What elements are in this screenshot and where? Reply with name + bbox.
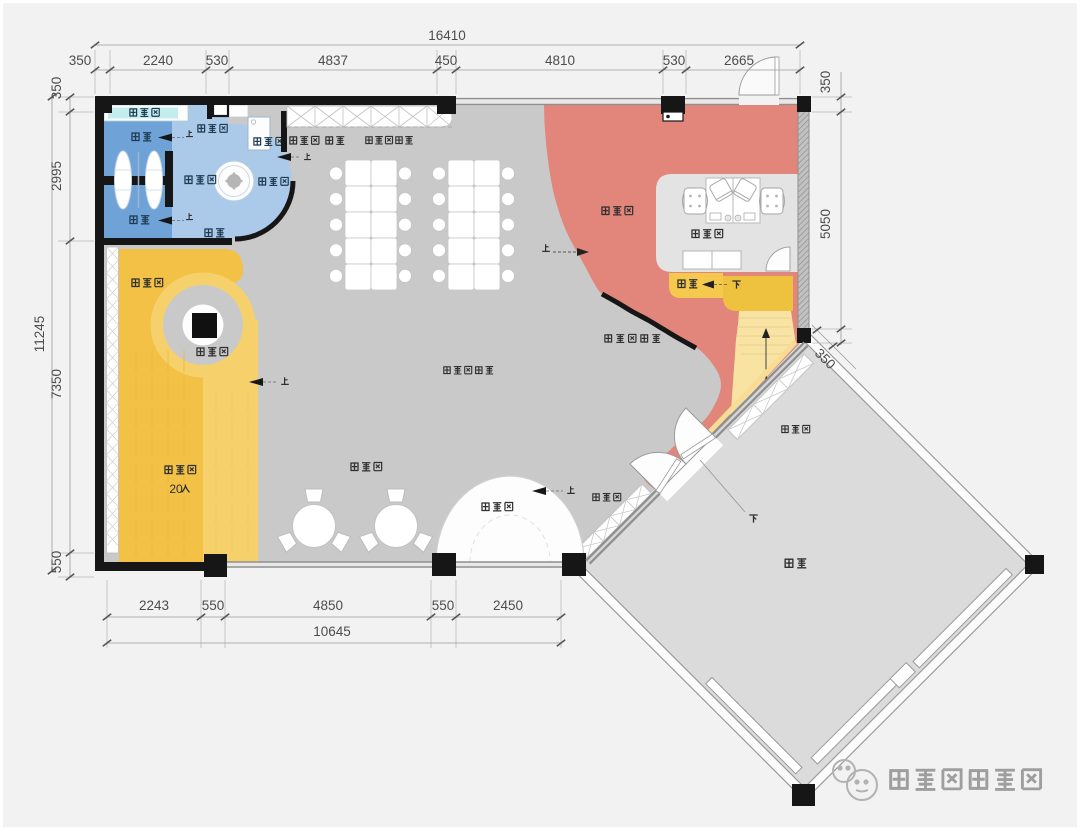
- svg-text:4810: 4810: [545, 53, 575, 68]
- svg-text:350: 350: [69, 53, 92, 68]
- svg-text:4837: 4837: [318, 53, 348, 68]
- svg-text:550: 550: [49, 551, 64, 574]
- svg-text:4850: 4850: [313, 598, 343, 613]
- svg-text:530: 530: [663, 53, 686, 68]
- svg-text:10645: 10645: [313, 624, 351, 639]
- svg-text:16410: 16410: [428, 28, 466, 43]
- svg-text:2665: 2665: [724, 53, 754, 68]
- svg-text:530: 530: [206, 53, 229, 68]
- svg-text:2240: 2240: [143, 53, 173, 68]
- svg-text:5050: 5050: [818, 209, 833, 239]
- svg-text:550: 550: [432, 598, 455, 613]
- svg-text:7350: 7350: [49, 369, 64, 399]
- svg-text:350: 350: [49, 77, 64, 100]
- svg-text:11245: 11245: [32, 316, 47, 353]
- svg-text:2243: 2243: [139, 598, 169, 613]
- svg-text:350: 350: [818, 71, 833, 94]
- svg-text:20: 20: [169, 482, 183, 496]
- svg-text:2995: 2995: [49, 161, 64, 191]
- svg-text:2450: 2450: [493, 598, 523, 613]
- svg-text:450: 450: [435, 53, 458, 68]
- svg-text:550: 550: [202, 598, 225, 613]
